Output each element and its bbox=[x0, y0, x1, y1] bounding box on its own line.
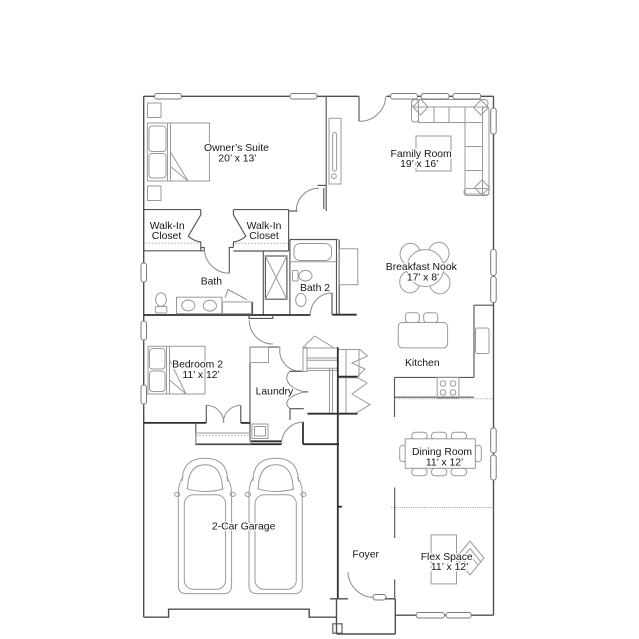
svg-text:17’ x 8’: 17’ x 8’ bbox=[407, 272, 440, 283]
svg-text:Kitchen: Kitchen bbox=[405, 358, 440, 369]
svg-text:Bath: Bath bbox=[201, 277, 223, 288]
svg-text:Breakfast Nook: Breakfast Nook bbox=[386, 262, 458, 273]
svg-text:Closet: Closet bbox=[152, 231, 182, 242]
svg-text:11’ x 12’: 11’ x 12’ bbox=[182, 370, 220, 381]
svg-text:20’ x 13’: 20’ x 13’ bbox=[218, 153, 256, 164]
svg-text:Bath 2: Bath 2 bbox=[300, 283, 330, 294]
svg-text:19’ x 16’: 19’ x 16’ bbox=[400, 159, 438, 170]
svg-text:Foyer: Foyer bbox=[352, 550, 379, 561]
svg-text:11’ x 12’: 11’ x 12’ bbox=[426, 457, 464, 468]
svg-text:Closet: Closet bbox=[249, 231, 279, 242]
svg-text:2-Car Garage: 2-Car Garage bbox=[212, 522, 276, 533]
svg-text:11’ x 12’: 11’ x 12’ bbox=[431, 562, 469, 573]
svg-text:Laundry: Laundry bbox=[256, 387, 294, 398]
